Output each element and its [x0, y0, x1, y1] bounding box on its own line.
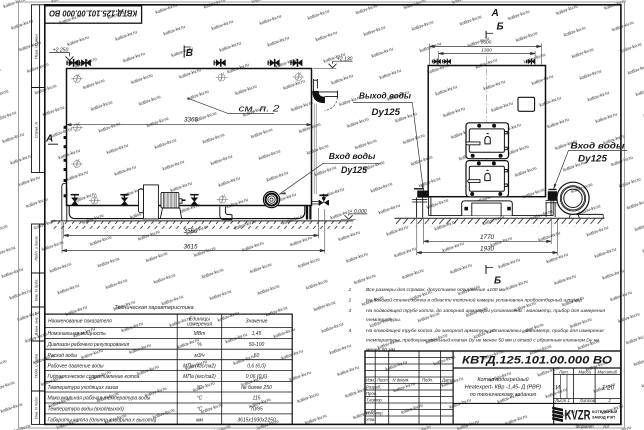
svg-text:Н.контр.: Н.контр.: [366, 411, 384, 416]
svg-text:Все размеры для справок, допус: Все размеры для справок, допустимое откл…: [366, 287, 507, 293]
svg-text:м3/ч: м3/ч: [194, 353, 205, 359]
svg-text:Изм.: Изм.: [366, 378, 375, 383]
svg-text:3615х1930х2250: 3615х1930х2250: [237, 418, 276, 424]
svg-text:1600: 1600: [481, 40, 492, 46]
svg-text:1300: 1300: [481, 48, 492, 54]
svg-text:ЗАВОД РЭП: ЗАВОД РЭП: [592, 415, 615, 420]
svg-text:Габариты котла (длинна х ширин: Габариты котла (длинна х ширина х высота…: [48, 418, 157, 424]
svg-text:Б: Б: [494, 276, 501, 287]
svg-text:115: 115: [253, 396, 261, 402]
svg-text:Утв.: Утв.: [366, 417, 376, 422]
svg-text:МПа (кгс/см2): МПа (кгс/см2): [183, 363, 216, 369]
svg-text:МПа (кгс/см2): МПа (кгс/см2): [183, 374, 216, 380]
svg-text:КВТД.125.101.00.000 ВО: КВТД.125.101.00.000 ВО: [462, 354, 613, 366]
svg-text:50: 50: [254, 353, 260, 359]
svg-text:KVZR: KVZR: [565, 407, 591, 423]
svg-text:°С: °С: [197, 407, 203, 413]
svg-text:менее 50 мм.: менее 50 мм.: [366, 347, 396, 353]
svg-text:КВТД.125.101.00.000 ВО: КВТД.125.101.00.000 ВО: [49, 9, 137, 19]
svg-text:0,6 (6,0): 0,6 (6,0): [247, 363, 266, 369]
svg-text:1: 1: [349, 287, 352, 293]
svg-text:не более 250: не более 250: [241, 385, 272, 391]
svg-text:Диапазон рабочего регулировани: Диапазон рабочего регулирования: [47, 342, 130, 348]
svg-text:В: В: [186, 48, 193, 59]
svg-text:°С: °С: [197, 385, 203, 391]
svg-text:Подп. и дата: Подп. и дата: [34, 353, 39, 378]
svg-text:Наименование показателя: Наименование показателя: [48, 319, 112, 325]
svg-text:°С: °С: [197, 396, 203, 402]
svg-text:Dy125: Dy125: [578, 153, 607, 163]
svg-text:1: 1: [568, 398, 570, 403]
svg-text:1770: 1770: [480, 234, 495, 241]
svg-text:А: А: [491, 8, 499, 19]
svg-text:Лит.: Лит.: [558, 369, 569, 374]
svg-text:температуры, предохранительный: температуры, предохранительный клапан Dу…: [366, 337, 599, 344]
svg-text:На отводящей трубе котла ,до з: На отводящей трубе котла ,до запорной ар…: [366, 327, 604, 334]
svg-text:Листов: Листов: [579, 398, 596, 403]
svg-text:3615: 3615: [183, 243, 198, 250]
svg-text:На подводящей трубе котла, д: На подводящей трубе котла, до запорной а…: [366, 307, 605, 314]
svg-text:Масштаб: Масштаб: [598, 369, 618, 374]
svg-text:Выход воды: Выход воды: [359, 91, 411, 100]
svg-text:Справ. N: Справ. N: [34, 122, 39, 138]
svg-text:0,06 (0,6): 0,06 (0,6): [246, 374, 268, 380]
svg-text:Взам. инв. N: Взам. инв. N: [34, 312, 39, 335]
svg-text:МВт: МВт: [194, 331, 206, 337]
svg-text:Инв. N дубл.: Инв. N дубл.: [34, 279, 39, 302]
svg-text:КОТЕЛЬНЫЙ: КОТЕЛЬНЫЙ: [592, 409, 618, 414]
svg-text:Пров.: Пров.: [366, 391, 377, 396]
svg-text:Dy125: Dy125: [372, 107, 401, 117]
svg-text:Гидравлическое сопротивление к: Гидравлическое сопротивление котла: [48, 374, 140, 380]
svg-text:Значение: Значение: [246, 319, 268, 325]
svg-text:Вход воды: Вход воды: [329, 152, 376, 161]
svg-text:А3: А3: [602, 424, 609, 429]
svg-text:1930: 1930: [480, 246, 495, 253]
svg-text:Котел водогрейный: Котел водогрейный: [477, 376, 528, 383]
svg-text:измерения: измерения: [187, 322, 212, 328]
svg-text:50-100: 50-100: [249, 342, 265, 348]
svg-text:см. п. 2: см. п. 2: [239, 103, 280, 113]
svg-text:Техническая характеристика: Техническая характеристика: [114, 305, 193, 311]
svg-text:Перв. примен.: Перв. примен.: [34, 33, 39, 59]
svg-text:3: 3: [349, 308, 352, 314]
svg-text:Температура воды (вход/выход): Температура воды (вход/выход): [48, 407, 125, 413]
svg-text:Расход воды: Расход воды: [48, 353, 78, 359]
svg-text:Подп.: Подп.: [422, 378, 433, 383]
svg-text:Лист: Лист: [376, 378, 388, 383]
svg-text:А: А: [45, 134, 53, 145]
svg-text:Инв. N подл.: Инв. N подл.: [34, 396, 39, 419]
svg-text:N докум.: N докум.: [393, 378, 410, 383]
svg-text:2: 2: [348, 297, 352, 303]
svg-text:по техническому заданию: по техническому заданию: [470, 392, 537, 398]
svg-text:мм: мм: [196, 418, 203, 424]
svg-text:температуры.: температуры.: [366, 318, 401, 323]
svg-text:Вход воды: Вход воды: [571, 142, 625, 151]
svg-text:4: 4: [349, 328, 352, 334]
svg-text:Т.контр.: Т.контр.: [366, 398, 383, 403]
svg-text:Рабочее давление воды: Рабочее давление воды: [48, 363, 104, 369]
svg-text:Dy125: Dy125: [341, 165, 367, 175]
svg-text:Формат: Формат: [576, 424, 594, 429]
svg-text:70/95: 70/95: [250, 407, 263, 413]
svg-text:На боковой стенке котла в обла: На боковой стенке котла в области топочн…: [366, 296, 582, 303]
svg-text:Дата: Дата: [441, 378, 454, 383]
svg-text:И: И: [556, 384, 561, 391]
svg-text:Номинальная мощность: Номинальная мощность: [48, 331, 107, 337]
svg-text:3560: 3560: [183, 228, 198, 235]
svg-text:Температура уходящих газов: Температура уходящих газов: [48, 385, 119, 391]
svg-text:Разраб.: Разраб.: [366, 385, 381, 390]
svg-text:1,45: 1,45: [252, 331, 262, 337]
svg-text:Б: Б: [497, 21, 504, 32]
svg-text:3365: 3365: [184, 117, 199, 124]
svg-text:1:20: 1:20: [602, 384, 615, 391]
svg-text:Подп. и дата: Подп. и дата: [34, 235, 39, 260]
svg-text:Масса: Масса: [579, 369, 592, 374]
svg-text:Максимальная рабочая температу: Максимальная рабочая температура воды: [48, 396, 151, 402]
svg-text:Лист: Лист: [554, 398, 566, 403]
svg-text:%: %: [197, 342, 202, 348]
svg-text:Heatexpert- КВр -1,45- Д (РВР): Heatexpert- КВр -1,45- Д (РВР): [465, 385, 541, 391]
